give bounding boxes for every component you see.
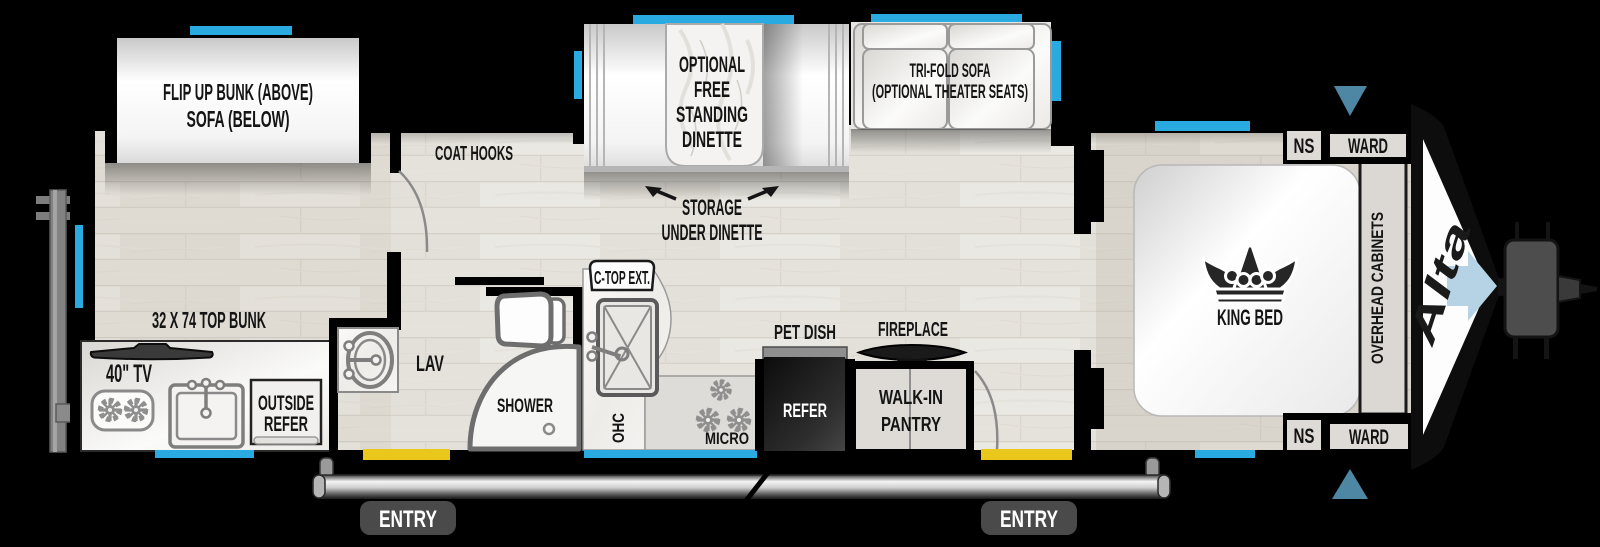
svg-text:STORAGE: STORAGE — [682, 195, 742, 220]
svg-text:UNDER DINETTE: UNDER DINETTE — [662, 220, 763, 245]
svg-text:PANTRY: PANTRY — [881, 414, 941, 436]
svg-text:FIREPLACE: FIREPLACE — [878, 319, 948, 341]
svg-text:ENTRY: ENTRY — [379, 506, 437, 533]
svg-text:WARD: WARD — [1349, 426, 1389, 449]
svg-text:SOFA (BELOW): SOFA (BELOW) — [187, 106, 290, 132]
svg-text:NS: NS — [1294, 425, 1315, 448]
svg-text:KING BED: KING BED — [1217, 305, 1283, 330]
svg-text:FREE: FREE — [694, 77, 730, 102]
svg-text:OHC: OHC — [609, 413, 628, 443]
svg-text:OVERHEAD CABINETS: OVERHEAD CABINETS — [1368, 212, 1387, 364]
svg-text:COAT HOOKS: COAT HOOKS — [435, 143, 513, 165]
svg-text:OPTIONAL: OPTIONAL — [679, 52, 745, 77]
svg-text:32 X 74 TOP BUNK: 32 X 74 TOP BUNK — [152, 307, 266, 333]
svg-text:STANDING: STANDING — [676, 102, 748, 127]
svg-text:PET DISH: PET DISH — [774, 322, 836, 344]
svg-text:C-TOP EXT.: C-TOP EXT. — [594, 268, 650, 288]
svg-text:TRI-FOLD SOFA: TRI-FOLD SOFA — [910, 61, 991, 82]
svg-text:WALK-IN: WALK-IN — [879, 387, 943, 409]
svg-text:NS: NS — [1294, 135, 1315, 158]
svg-text:(OPTIONAL THEATER SEATS): (OPTIONAL THEATER SEATS) — [872, 82, 1028, 103]
svg-text:MICRO: MICRO — [705, 429, 749, 448]
svg-text:REFER: REFER — [264, 413, 308, 436]
svg-text:WARD: WARD — [1348, 135, 1388, 158]
svg-text:FLIP UP BUNK (ABOVE): FLIP UP BUNK (ABOVE) — [163, 79, 313, 105]
svg-text:40" TV: 40" TV — [106, 360, 152, 388]
svg-text:SHOWER: SHOWER — [497, 396, 553, 417]
svg-text:DINETTE: DINETTE — [682, 127, 742, 152]
svg-text:REFER: REFER — [783, 401, 827, 422]
svg-text:ENTRY: ENTRY — [1000, 506, 1058, 533]
svg-text:LAV: LAV — [416, 351, 444, 376]
svg-text:OUTSIDE: OUTSIDE — [258, 392, 314, 415]
